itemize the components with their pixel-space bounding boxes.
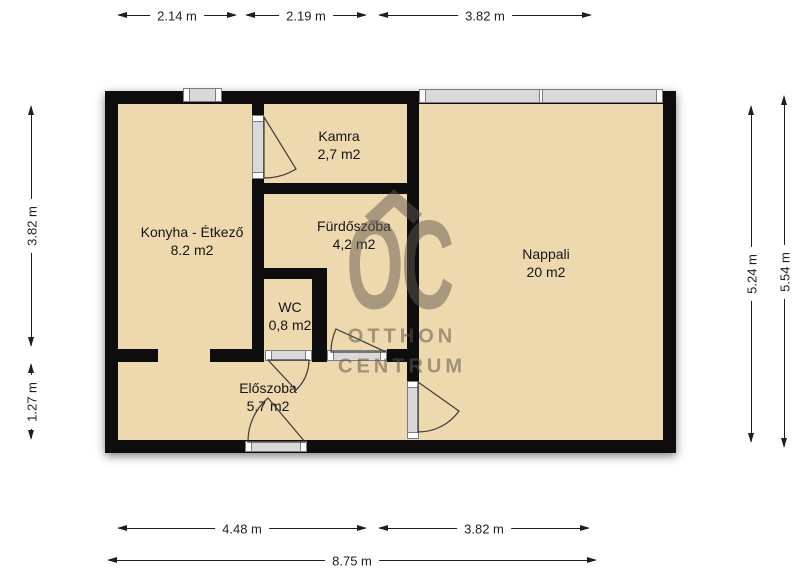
- room-label-furdoszoba: Fürdőszoba 4,2 m2: [317, 217, 391, 253]
- dimension-left-lower: 1.27 m: [24, 363, 40, 440]
- dimension-label: 3.82 m: [457, 522, 511, 537]
- dimension-left-upper: 3.82 m: [24, 105, 40, 347]
- arrowhead-left-icon: [378, 525, 388, 531]
- room-label-wc: WC 0,8 m2: [269, 298, 312, 334]
- window-mullion: [539, 89, 543, 103]
- dimension-right-outer: 5.54 m: [777, 95, 793, 448]
- arrowhead-left-icon: [117, 525, 127, 531]
- door-kamra: [252, 115, 264, 179]
- dimension-bottom-left: 4.48 m: [117, 521, 367, 537]
- dimension-label: 8.75 m: [325, 554, 379, 569]
- room-label-konyha: Konyha - Étkező 8.2 m2: [141, 223, 244, 259]
- window-cap: [215, 88, 222, 102]
- window-nappali: [419, 89, 663, 103]
- room-name: Konyha - Étkező: [141, 223, 244, 241]
- wall-nappali-left: [407, 104, 419, 381]
- arrowhead-left-icon: [117, 12, 127, 18]
- room-name: Fürdőszoba: [317, 217, 391, 235]
- room-name: WC: [269, 298, 312, 316]
- door-cap: [380, 350, 387, 361]
- arrowhead-left-icon: [245, 12, 255, 18]
- wall-eloszoba-top-b: [210, 349, 264, 362]
- window-cap: [419, 89, 426, 103]
- room-area: 2,7 m2: [318, 145, 361, 163]
- window-cap: [183, 88, 190, 102]
- door-wc: [265, 350, 312, 361]
- arrowhead-left-icon: [378, 12, 388, 18]
- dimension-label: 5.24 m: [745, 247, 760, 301]
- room-label-eloszoba: Előszoba 5,7 m2: [239, 379, 297, 415]
- room-area: 5,7 m2: [239, 397, 297, 415]
- dimension-bottom-total: 8.75 m: [107, 553, 597, 569]
- dimension-label: 3.82 m: [25, 199, 40, 253]
- dimension-top-nappali: 3.82 m: [378, 8, 592, 24]
- dimension-label: 3.82 m: [458, 9, 512, 24]
- room-name: Kamra: [318, 127, 361, 145]
- floor-area: [118, 104, 663, 440]
- door-cap: [300, 441, 307, 452]
- arrowhead-right-icon: [357, 525, 367, 531]
- door-cap: [327, 350, 334, 361]
- building-outline: [105, 91, 676, 453]
- arrowhead-up-icon: [28, 105, 34, 115]
- arrowhead-up-icon: [28, 363, 34, 373]
- door-cap: [407, 381, 419, 388]
- arrowhead-right-icon: [582, 12, 592, 18]
- arrowhead-down-icon: [28, 430, 34, 440]
- wall-konyha-kamra-top: [252, 104, 264, 115]
- arrowhead-up-icon: [781, 95, 787, 105]
- arrowhead-right-icon: [580, 525, 590, 531]
- window-cap: [656, 89, 663, 103]
- dimension-label: 1.27 m: [25, 375, 40, 429]
- room-area: 20 m2: [522, 263, 569, 281]
- room-label-nappali: Nappali 20 m2: [522, 245, 569, 281]
- room-area: 4,2 m2: [317, 235, 391, 253]
- arrowhead-right-icon: [587, 557, 597, 563]
- door-cap: [305, 350, 312, 361]
- dimension-label: 2.14 m: [150, 9, 204, 24]
- room-label-kamra: Kamra 2,7 m2: [318, 127, 361, 163]
- room-name: Előszoba: [239, 379, 297, 397]
- arrowhead-left-icon: [107, 557, 117, 563]
- door-cap: [245, 441, 252, 452]
- door-cap: [252, 115, 264, 122]
- dimension-label: 5.54 m: [778, 245, 793, 299]
- dimension-right-inner: 5.24 m: [744, 105, 760, 443]
- arrowhead-right-icon: [227, 12, 237, 18]
- room-name: Nappali: [522, 245, 569, 263]
- door-entrance: [245, 441, 307, 452]
- dimension-label: 4.48 m: [215, 522, 269, 537]
- door-cap: [407, 432, 419, 439]
- floorplan-canvas: 2.14 m 2.19 m 3.82 m 4.48 m 3.82 m 8.75 …: [0, 0, 800, 571]
- dimension-top-kamra: 2.19 m: [245, 8, 367, 24]
- door-cap: [252, 172, 264, 179]
- arrowhead-down-icon: [781, 438, 787, 448]
- dimension-top-konyha: 2.14 m: [117, 8, 237, 24]
- room-area: 8.2 m2: [141, 241, 244, 259]
- wall-kamra-furdoszoba: [264, 183, 407, 194]
- arrowhead-down-icon: [748, 433, 754, 443]
- window-konyha: [183, 88, 222, 102]
- wall-eloszoba-top-c: [387, 349, 407, 362]
- arrowhead-right-icon: [357, 12, 367, 18]
- arrowhead-up-icon: [748, 105, 754, 115]
- wall-wc-right: [312, 268, 327, 362]
- wall-eloszoba-top-a: [118, 349, 158, 362]
- door-furdoszoba: [327, 350, 387, 361]
- dimension-bottom-right: 3.82 m: [378, 521, 590, 537]
- room-area: 0,8 m2: [269, 316, 312, 334]
- arrowhead-down-icon: [28, 337, 34, 347]
- door-cap: [265, 350, 272, 361]
- door-nappali: [407, 381, 419, 439]
- dimension-label: 2.19 m: [279, 9, 333, 24]
